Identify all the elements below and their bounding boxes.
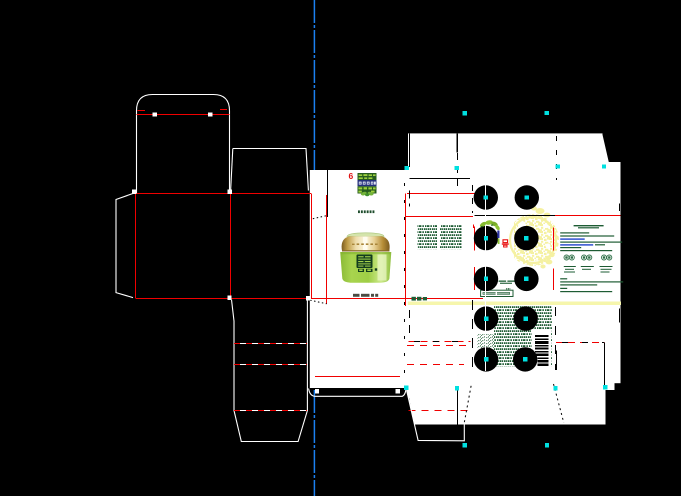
svg-text:6: 6	[349, 171, 354, 181]
